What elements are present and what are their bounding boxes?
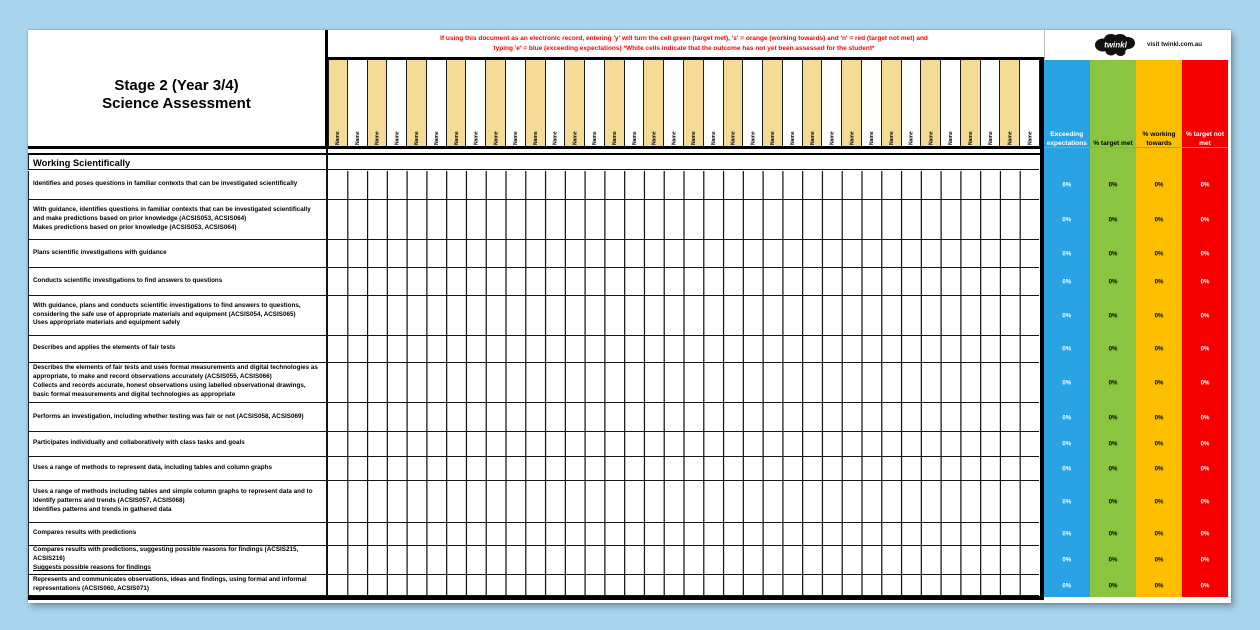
svg-text:Name: Name [810,131,816,145]
svg-text:Name: Name [830,131,836,145]
svg-text:Name: Name [731,131,737,145]
svg-text:Name: Name [691,131,697,145]
svg-text:twinkl: twinkl [1104,41,1127,50]
svg-text:Name: Name [889,131,895,145]
svg-text:Name: Name [948,131,954,145]
svg-text:Name: Name [968,131,974,145]
svg-text:Name: Name [988,131,994,145]
svg-text:Name: Name [474,131,480,145]
svg-text:Name: Name [1008,131,1014,145]
svg-text:Name: Name [928,131,934,145]
svg-text:Name: Name [632,131,638,145]
svg-text:Name: Name [454,131,460,145]
svg-text:Name: Name [790,131,796,145]
svg-text:Name: Name [612,131,618,145]
svg-text:Name: Name [592,131,598,145]
svg-text:Name: Name [572,131,578,145]
svg-text:Name: Name [869,131,875,145]
svg-text:Name: Name [533,131,539,145]
svg-text:Name: Name [750,131,756,145]
svg-text:Name: Name [553,131,559,145]
svg-text:Name: Name [770,131,776,145]
svg-text:Name: Name [513,131,519,145]
svg-text:Name: Name [375,131,381,145]
svg-text:Name: Name [909,131,915,145]
svg-text:Name: Name [414,131,420,145]
svg-text:Name: Name [652,131,658,145]
svg-text:Name: Name [335,131,341,145]
svg-text:Name: Name [394,131,400,145]
svg-text:Name: Name [355,131,361,145]
svg-text:Name: Name [711,131,717,145]
svg-text:Name: Name [493,131,499,145]
svg-text:Name: Name [671,131,677,145]
svg-text:Name: Name [434,131,440,145]
svg-text:Name: Name [1027,131,1033,145]
svg-text:Name: Name [849,131,855,145]
